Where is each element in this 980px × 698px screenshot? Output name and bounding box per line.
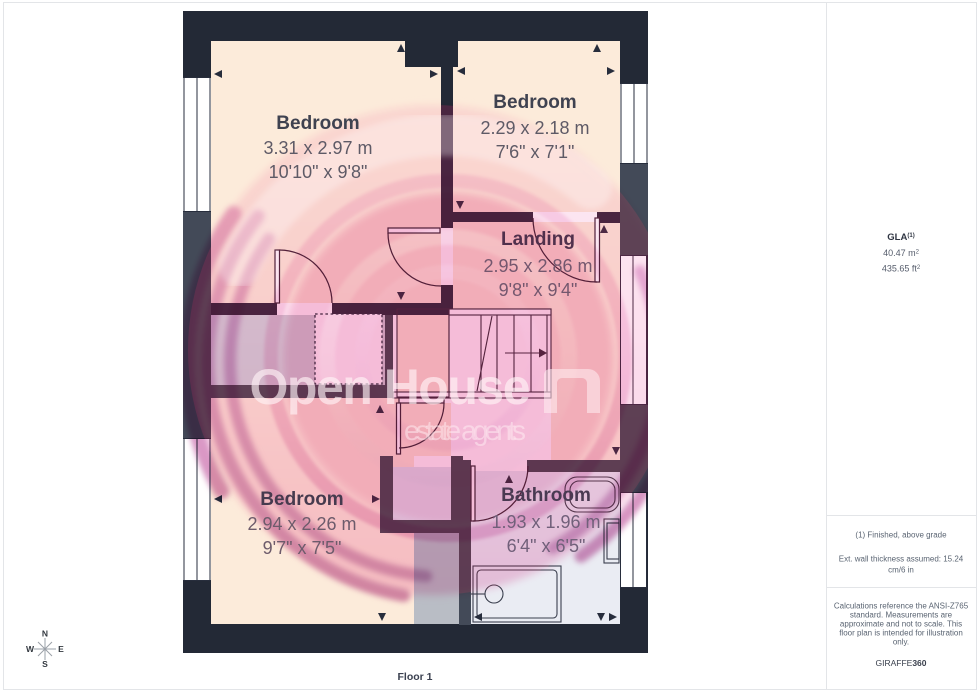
svg-text:435.65 ft2: 435.65 ft2 <box>882 264 921 274</box>
svg-text:W: W <box>26 644 35 654</box>
svg-text:1.93 x 1.96 m: 1.93 x 1.96 m <box>491 512 600 532</box>
svg-text:floor plan is intended for ill: floor plan is intended for illustration <box>839 629 963 638</box>
svg-text:approximate and not to scale.: approximate and not to scale. This <box>840 620 962 629</box>
svg-text:7'6" x 7'1": 7'6" x 7'1" <box>496 142 575 162</box>
svg-text:Ext. wall thickness assumed: 1: Ext. wall thickness assumed: 15.24 <box>839 555 964 564</box>
svg-text:Bedroom: Bedroom <box>276 113 359 134</box>
svg-text:2.95 x 2.86 m: 2.95 x 2.86 m <box>483 256 592 276</box>
svg-text:10'10" x 9'8": 10'10" x 9'8" <box>269 162 368 182</box>
svg-text:E: E <box>58 644 64 654</box>
svg-text:Bathroom: Bathroom <box>501 485 591 506</box>
svg-text:40.47 m2: 40.47 m2 <box>883 248 920 258</box>
svg-text:Calculations reference the ANS: Calculations reference the ANSI-Z765 <box>834 602 969 611</box>
svg-text:6'4" x 6'5": 6'4" x 6'5" <box>507 536 586 556</box>
svg-text:Bedroom: Bedroom <box>493 92 576 113</box>
svg-text:Floor 1: Floor 1 <box>397 671 432 683</box>
svg-text:Bedroom: Bedroom <box>260 489 343 510</box>
svg-text:S: S <box>42 659 48 669</box>
svg-text:2.29 x 2.18 m: 2.29 x 2.18 m <box>480 118 589 138</box>
svg-text:Landing: Landing <box>501 229 575 250</box>
svg-text:N: N <box>42 629 48 639</box>
svg-text:3.31 x 2.97 m: 3.31 x 2.97 m <box>263 138 372 158</box>
svg-text:standard. Measurements are: standard. Measurements are <box>850 611 953 620</box>
svg-text:9'7" x 7'5": 9'7" x 7'5" <box>263 538 342 558</box>
svg-text:estate agents: estate agents <box>404 415 526 446</box>
svg-text:GIRAFFE360: GIRAFFE360 <box>875 658 926 668</box>
svg-text:9'8" x 9'4": 9'8" x 9'4" <box>499 280 578 300</box>
svg-text:Open House: Open House <box>250 359 531 415</box>
svg-text:only.: only. <box>893 638 909 647</box>
svg-text:GLA(1): GLA(1) <box>887 232 914 243</box>
svg-text:cm/6 in: cm/6 in <box>888 566 914 575</box>
svg-text:(1) Finished, above grade: (1) Finished, above grade <box>855 531 947 540</box>
svg-text:2.94 x 2.26 m: 2.94 x 2.26 m <box>247 514 356 534</box>
